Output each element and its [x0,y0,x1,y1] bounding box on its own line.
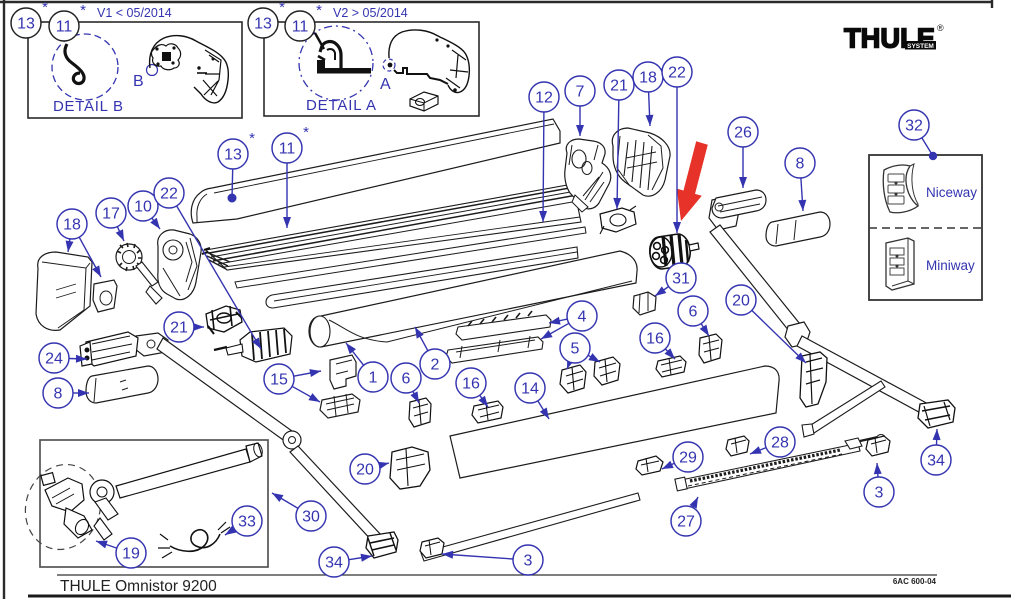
svg-text:20: 20 [356,462,374,479]
svg-text:V1 < 05/2014: V1 < 05/2014 [97,6,172,20]
svg-text:*: * [42,0,48,16]
svg-text:16: 16 [646,331,664,348]
svg-text:DETAIL A: DETAIL A [306,97,376,114]
svg-text:22: 22 [160,186,178,203]
svg-text:11: 11 [279,141,296,158]
svg-text:22: 22 [668,65,686,82]
svg-text:SYSTEM: SYSTEM [907,43,934,50]
svg-text:18: 18 [63,217,81,234]
svg-text:*: * [303,124,309,141]
svg-text:17: 17 [102,206,120,223]
svg-text:27: 27 [677,514,695,531]
svg-text:32: 32 [905,118,923,135]
svg-text:*: * [279,0,285,16]
svg-text:®: ® [937,23,944,33]
svg-text:A: A [380,76,391,93]
svg-text:13: 13 [224,147,242,164]
svg-text:24: 24 [45,351,63,368]
svg-text:12: 12 [535,90,553,107]
svg-text:33: 33 [238,514,256,531]
svg-text:18: 18 [639,70,657,87]
svg-text:*: * [80,2,86,19]
svg-text:10: 10 [134,199,152,216]
svg-text:8: 8 [796,156,805,173]
svg-text:20: 20 [732,293,750,310]
svg-text:19: 19 [122,546,140,563]
svg-text:THULE Omnistor 9200: THULE Omnistor 9200 [60,578,217,595]
svg-text:6AC 600-04: 6AC 600-04 [893,577,937,586]
svg-text:11: 11 [292,19,309,36]
svg-text:21: 21 [170,320,188,337]
svg-text:6: 6 [402,371,411,388]
svg-text:6: 6 [689,304,698,321]
svg-text:Niceway: Niceway [926,185,977,200]
svg-text:30: 30 [302,509,320,526]
svg-text:3: 3 [524,553,533,570]
svg-text:3: 3 [875,485,884,502]
svg-text:*: * [316,2,322,19]
svg-text:15: 15 [270,372,288,389]
svg-text:5: 5 [571,341,580,358]
svg-text:V2 > 05/2014: V2 > 05/2014 [333,6,408,20]
svg-text:DETAIL B: DETAIL B [53,98,123,115]
svg-text:B: B [133,73,144,90]
svg-text:16: 16 [462,376,480,393]
svg-text:13: 13 [254,16,272,33]
svg-text:Miniway: Miniway [926,258,975,273]
svg-text:4: 4 [578,309,587,326]
svg-text:21: 21 [610,78,628,95]
svg-text:1: 1 [369,370,378,387]
svg-text:29: 29 [679,450,697,467]
svg-text:14: 14 [521,381,539,398]
svg-text:*: * [249,130,255,147]
svg-text:8: 8 [54,386,63,403]
svg-text:31: 31 [672,271,690,288]
svg-text:13: 13 [17,16,35,33]
svg-text:11: 11 [56,19,73,36]
svg-text:7: 7 [576,84,585,101]
svg-text:2: 2 [431,357,440,374]
svg-text:26: 26 [734,125,752,142]
svg-text:34: 34 [325,555,343,572]
svg-text:28: 28 [771,435,789,452]
svg-text:34: 34 [927,453,945,470]
